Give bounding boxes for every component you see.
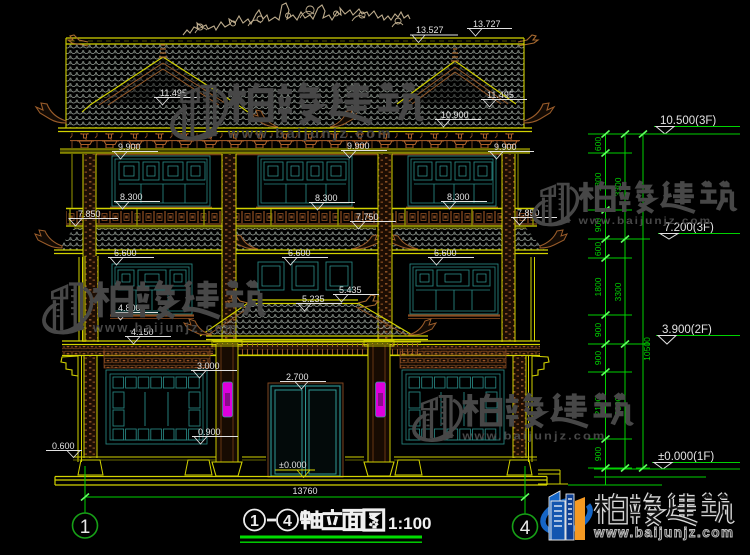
svg-text:±0.000(1F): ±0.000(1F) — [658, 451, 714, 463]
svg-text:11.495: 11.495 — [487, 90, 514, 100]
svg-text:9.900: 9.900 — [494, 142, 517, 152]
svg-text:10.500(3F): 10.500(3F) — [660, 115, 716, 127]
svg-text:6.600: 6.600 — [434, 248, 457, 258]
svg-text:4: 4 — [520, 518, 531, 539]
svg-text:±0.000: ±0.000 — [279, 460, 306, 470]
svg-text:5.235: 5.235 — [302, 294, 325, 304]
svg-text:900: 900 — [593, 323, 603, 337]
svg-text:900: 900 — [593, 447, 603, 461]
svg-text:13.727: 13.727 — [473, 19, 501, 29]
svg-text:8.300: 8.300 — [447, 192, 470, 202]
svg-text:10.900: 10.900 — [441, 110, 469, 120]
svg-text:3300: 3300 — [613, 282, 623, 301]
svg-text:3.900(2F): 3.900(2F) — [662, 324, 712, 336]
svg-text:0.900: 0.900 — [198, 427, 221, 437]
svg-text:1: 1 — [250, 513, 259, 530]
svg-text:13760: 13760 — [292, 486, 317, 496]
svg-text:1800: 1800 — [593, 277, 603, 296]
svg-text:6.600: 6.600 — [288, 248, 311, 258]
svg-text:9.900: 9.900 — [118, 142, 141, 152]
svg-text:1:100: 1:100 — [388, 514, 431, 533]
svg-text:4: 4 — [283, 513, 292, 530]
svg-text:8.300: 8.300 — [315, 193, 338, 203]
svg-text:600: 600 — [593, 137, 603, 151]
svg-text:6.600: 6.600 — [114, 248, 137, 258]
svg-text:www.baijunjz.com: www.baijunjz.com — [593, 525, 735, 540]
svg-text:9.900: 9.900 — [347, 141, 370, 151]
svg-text:600: 600 — [593, 242, 603, 256]
svg-text:2.700: 2.700 — [286, 372, 309, 382]
svg-text:5.435: 5.435 — [339, 285, 362, 295]
svg-text:13.527: 13.527 — [416, 25, 444, 35]
svg-text:8.300: 8.300 — [120, 192, 143, 202]
svg-text:1: 1 — [80, 517, 91, 538]
svg-text:3.000: 3.000 — [197, 361, 220, 371]
svg-text:7.750: 7.750 — [356, 212, 379, 222]
svg-text:10500: 10500 — [642, 337, 652, 361]
svg-text:0.600: 0.600 — [52, 441, 75, 451]
svg-text:7.850: 7.850 — [78, 209, 101, 219]
svg-text:900: 900 — [593, 351, 603, 365]
